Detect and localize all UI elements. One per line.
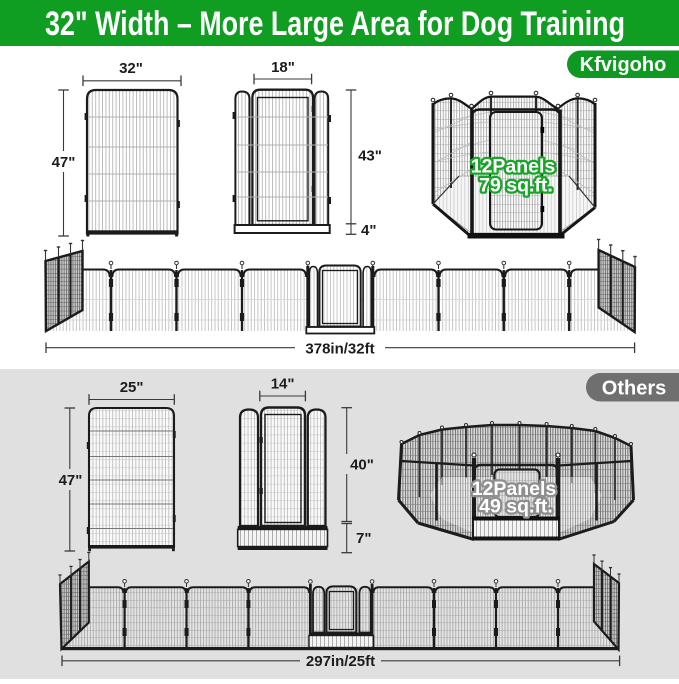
svg-text:47": 47" bbox=[52, 154, 76, 171]
svg-text:49 sq.ft.: 49 sq.ft. bbox=[479, 496, 553, 518]
svg-text:32" Width – More Large Area fo: 32" Width – More Large Area for Dog Trai… bbox=[45, 5, 625, 43]
svg-text:79 sq.ft.: 79 sq.ft. bbox=[479, 175, 553, 197]
svg-text:14": 14" bbox=[271, 376, 295, 393]
svg-text:25": 25" bbox=[120, 379, 144, 396]
svg-text:Others: Others bbox=[602, 378, 666, 400]
svg-text:378in/32ft: 378in/32ft bbox=[305, 341, 374, 358]
svg-text:7": 7" bbox=[356, 530, 371, 547]
svg-text:43": 43" bbox=[358, 148, 382, 165]
svg-text:Kfvigoho: Kfvigoho bbox=[580, 54, 667, 76]
svg-text:4": 4" bbox=[361, 222, 376, 239]
svg-text:297in/25ft: 297in/25ft bbox=[306, 653, 375, 670]
svg-text:18": 18" bbox=[271, 59, 295, 76]
svg-text:40": 40" bbox=[350, 457, 374, 474]
svg-text:47": 47" bbox=[59, 472, 83, 489]
svg-text:32": 32" bbox=[119, 60, 143, 77]
